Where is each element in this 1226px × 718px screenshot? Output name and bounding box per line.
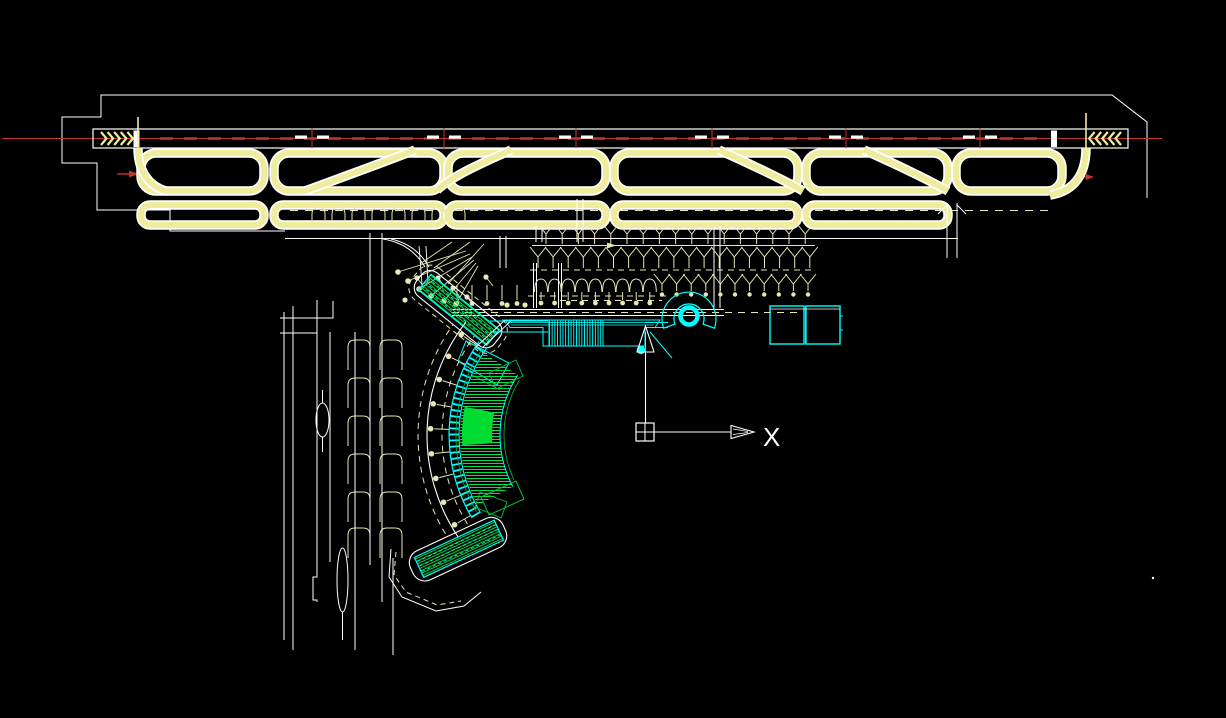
stray-point <box>1152 577 1154 579</box>
red-arrow-marker-left <box>117 171 139 178</box>
apron-taxilanes <box>280 199 966 333</box>
ucs-x-arrowhead <box>731 426 754 439</box>
concourse-solid-band <box>462 407 494 446</box>
road-island-oval-upper <box>316 403 329 437</box>
rotunda-building <box>662 292 716 328</box>
ucs-x-label: X <box>763 422 780 452</box>
service-buildings <box>770 306 843 344</box>
ucs-icon: X <box>636 326 780 452</box>
runway <box>2 113 1162 180</box>
road-island-oval-lower <box>337 548 348 612</box>
cad-model-space[interactable]: X <box>0 0 1226 718</box>
runway-threshold-bar-right <box>1051 131 1057 148</box>
taxiway-loops <box>138 148 1086 225</box>
cad-drawing[interactable]: X <box>0 0 1226 718</box>
arc-concourse <box>418 322 523 537</box>
apron-stands <box>312 207 818 558</box>
south-pier <box>405 513 511 585</box>
